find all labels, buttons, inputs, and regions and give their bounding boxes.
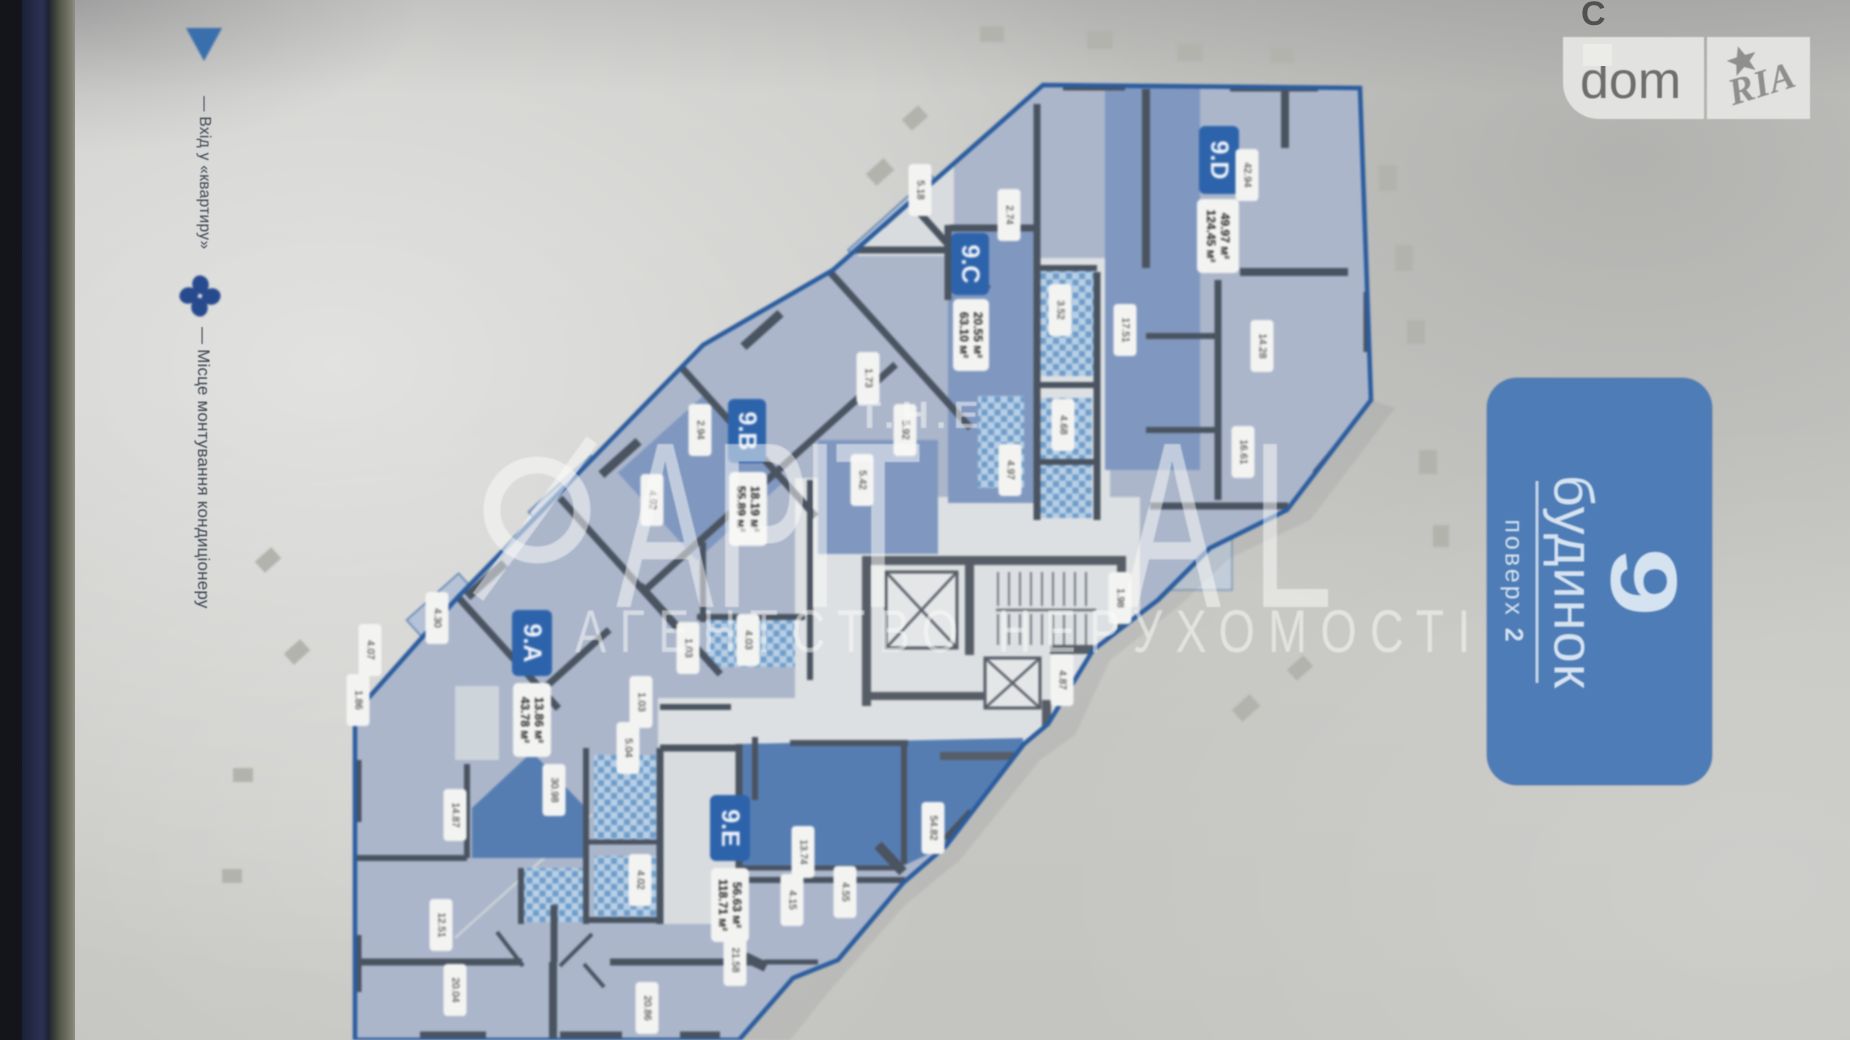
svg-text:4.55: 4.55 [840,882,851,902]
svg-text:4.15: 4.15 [787,890,798,910]
svg-text:1.03: 1.03 [636,692,647,712]
svg-text:20.04: 20.04 [450,977,461,1002]
svg-text:3.52: 3.52 [1055,300,1066,320]
svg-text:4.87: 4.87 [1057,670,1068,690]
svg-text:124.45 м²: 124.45 м² [1204,210,1218,263]
svg-text:1.98: 1.98 [1115,588,1126,608]
svg-text:21.58: 21.58 [730,947,741,972]
svg-text:13.74: 13.74 [798,839,809,864]
svg-text:4.97: 4.97 [1005,460,1016,480]
svg-text:20.55 м²: 20.55 м² [971,312,985,358]
svg-text:5.04: 5.04 [623,738,634,758]
svg-text:16.61: 16.61 [1238,439,1249,464]
svg-text:4.03: 4.03 [743,630,754,650]
svg-text:5.42: 5.42 [857,470,868,490]
svg-text:4.02: 4.02 [635,870,646,890]
svg-text:4.68: 4.68 [1058,415,1069,435]
svg-text:12.51: 12.51 [436,912,447,937]
svg-text:56.63 м²: 56.63 м² [730,882,744,928]
svg-text:9.D: 9.D [1205,141,1233,180]
svg-text:2.74: 2.74 [1004,205,1015,225]
svg-text:14.28: 14.28 [1257,333,1268,358]
svg-text:4.30: 4.30 [432,608,443,628]
svg-text:2.94: 2.94 [695,420,706,440]
svg-text:4.07: 4.07 [365,640,376,660]
svg-text:55.89 м²: 55.89 м² [734,486,748,532]
svg-text:54.82: 54.82 [928,815,939,840]
svg-text:17.51: 17.51 [1120,317,1131,342]
svg-text:9.C: 9.C [956,245,984,284]
svg-text:4.92: 4.92 [647,490,658,510]
svg-text:42.94: 42.94 [1242,162,1253,187]
svg-text:9.A: 9.A [518,624,546,663]
svg-text:1.73: 1.73 [863,368,874,388]
svg-text:118.71 м²: 118.71 м² [716,879,730,931]
svg-text:30.98: 30.98 [549,777,560,802]
svg-text:5.92: 5.92 [900,420,911,440]
svg-text:63.10 м²: 63.10 м² [957,312,971,358]
svg-text:13.86 м²: 13.86 м² [532,697,546,743]
svg-text:49.97 м²: 49.97 м² [1218,213,1232,259]
svg-text:18.19 м²: 18.19 м² [748,486,762,532]
svg-text:14.87: 14.87 [450,802,461,827]
svg-text:43.78 м²: 43.78 м² [518,697,532,743]
svg-text:1.86: 1.86 [353,690,364,710]
svg-text:1.03: 1.03 [683,638,694,658]
svg-text:5.18: 5.18 [915,180,926,200]
svg-text:9.E: 9.E [716,809,744,847]
svg-text:20.86: 20.86 [642,995,653,1020]
svg-text:9.B: 9.B [733,412,761,451]
